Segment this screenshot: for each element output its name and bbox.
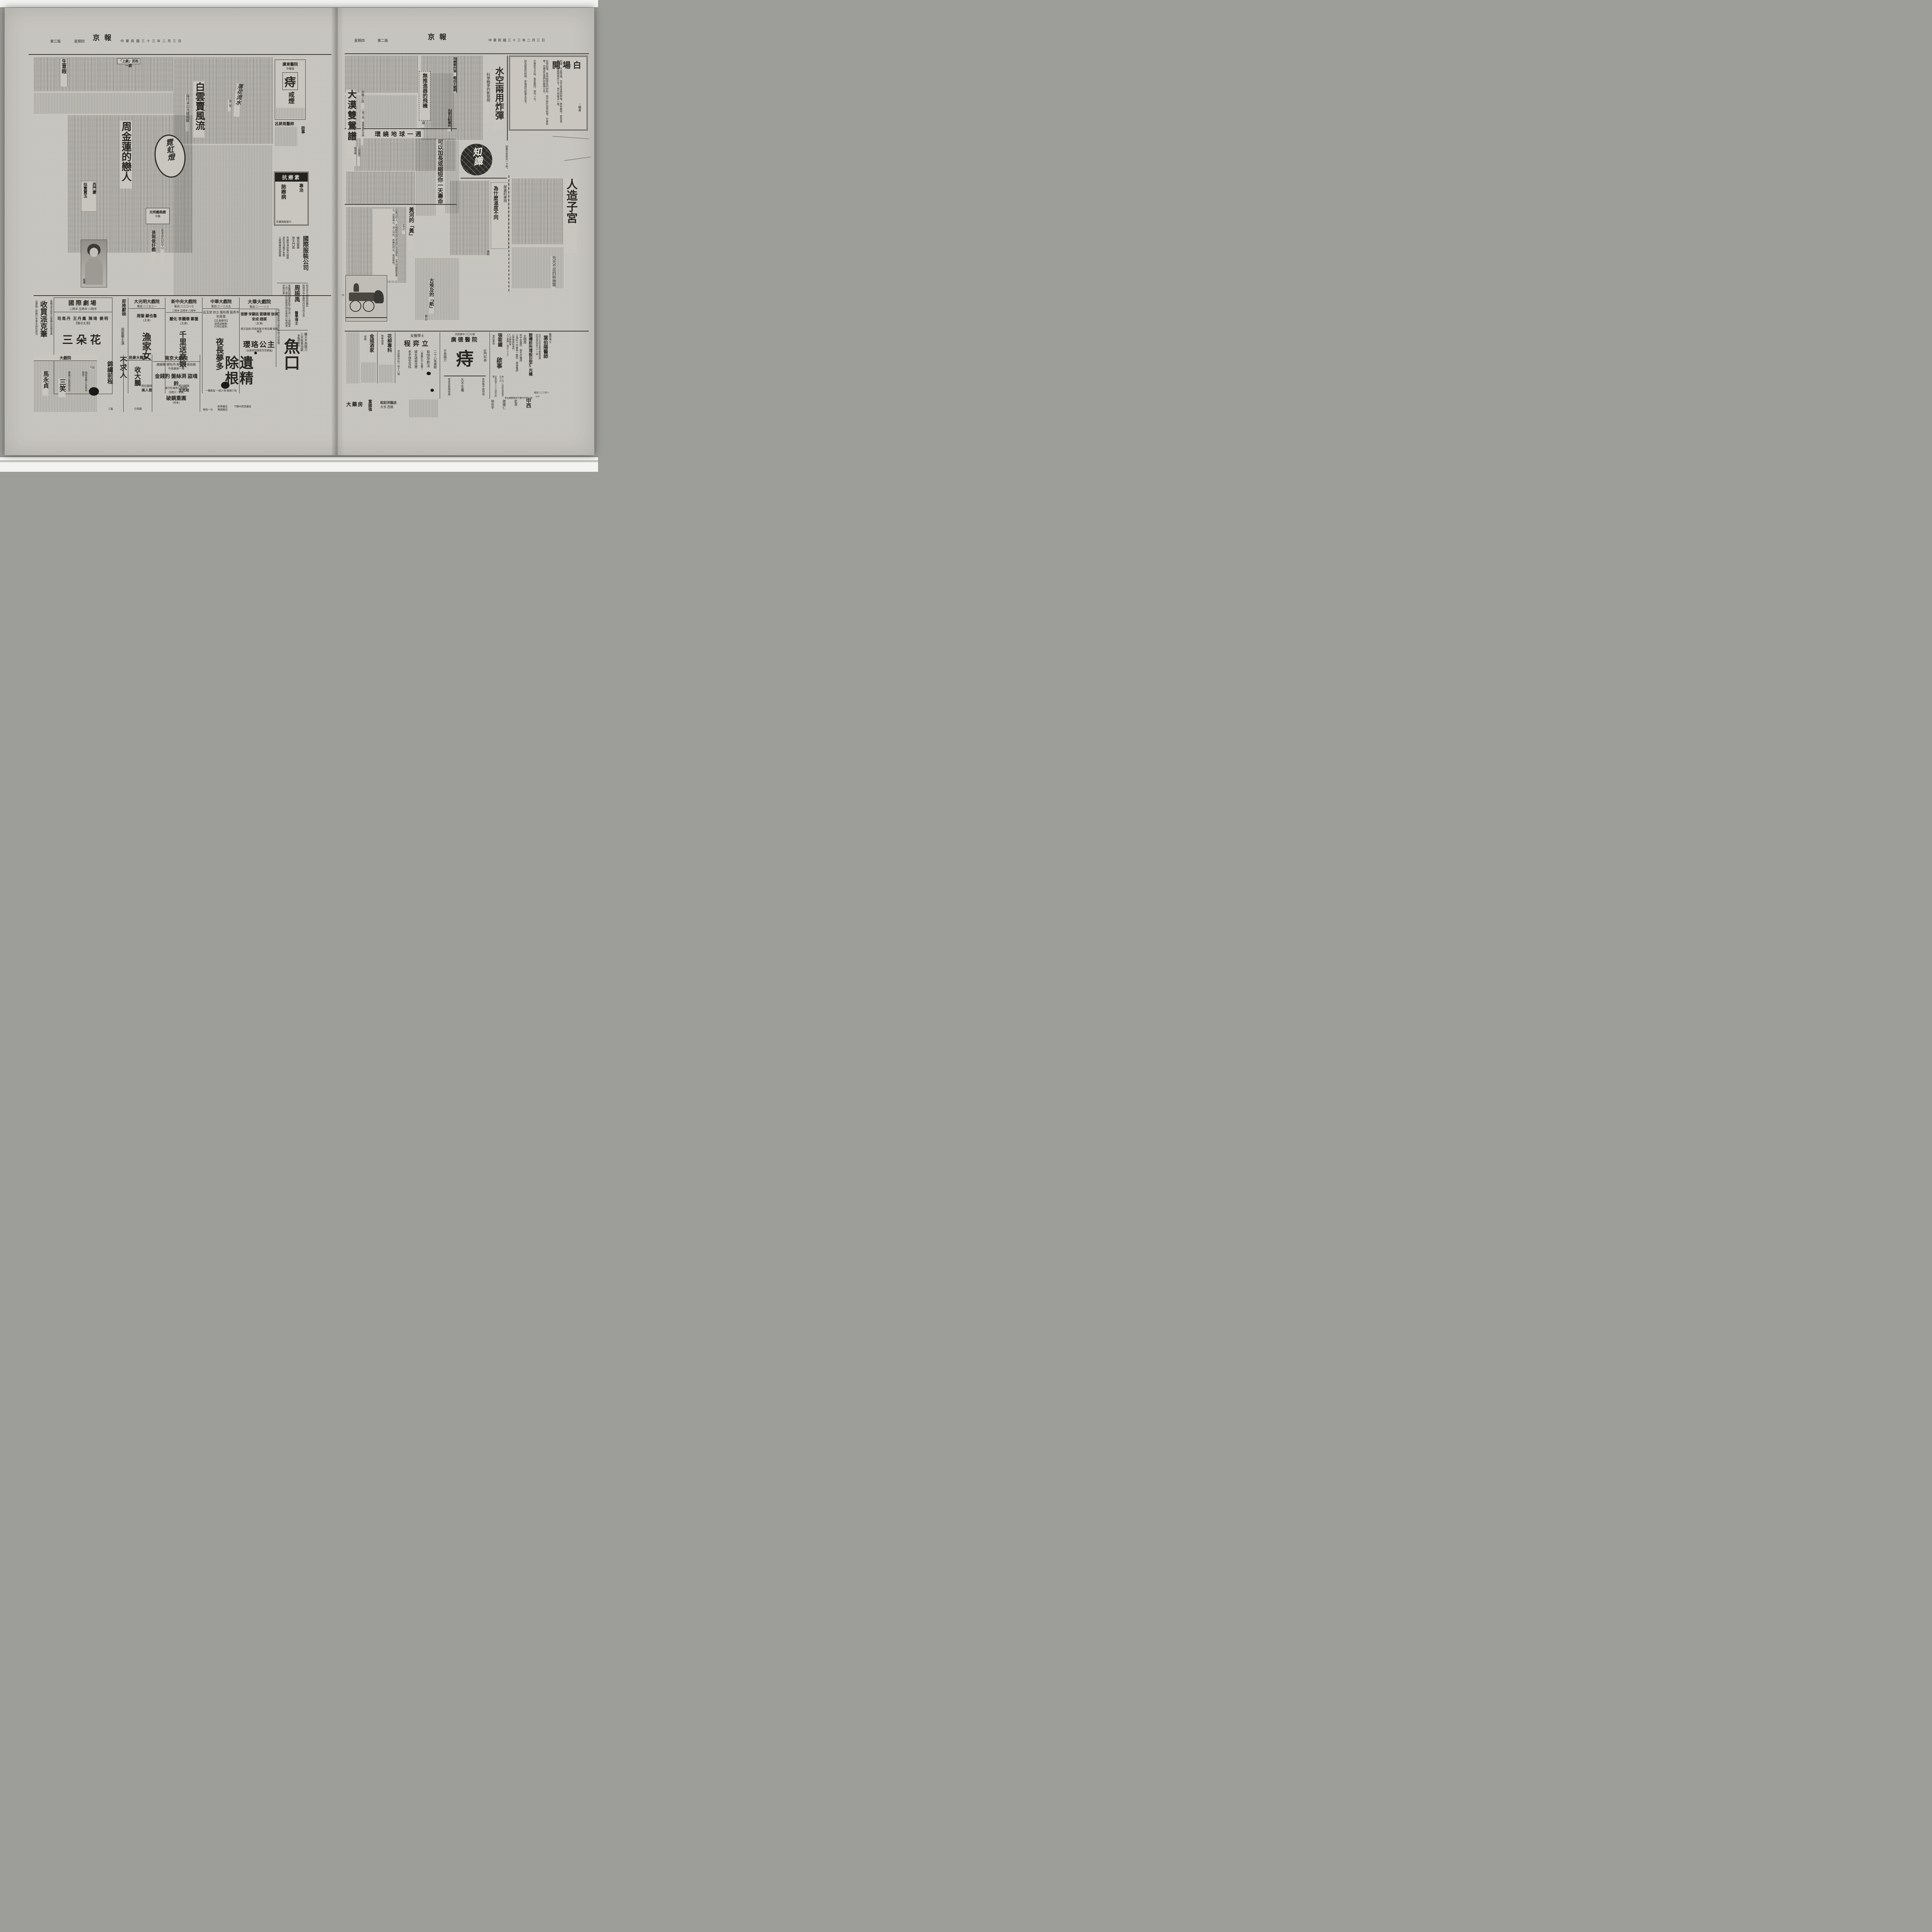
ad-divider — [444, 376, 486, 376]
ad-clothing: 國際服裝公司 擴充營業 放大門面 馬褲呢海勃龍大總匯 貨色充沛獨步金陵 工精價廉… — [277, 235, 308, 281]
theater-film: 三朵花 — [54, 332, 112, 347]
seal-text: 霓虹燈 — [164, 138, 176, 173]
date-line: 中華民國三十三年二月三日 — [488, 38, 546, 43]
article-title-jet-box: 無推進器的飛機 — [419, 71, 430, 121]
article-title-biz-eye: 生意眼 — [60, 59, 68, 87]
article-body — [345, 56, 418, 93]
ad-line1: 專治 — [298, 184, 303, 197]
shop-name: 徐志平 — [491, 400, 494, 417]
note-line1: 光明義務戲 — [146, 210, 169, 214]
theater-phone: 電話:二三〇八七 — [166, 304, 202, 308]
note-line2: 今晚 — [146, 214, 169, 218]
ad-zhangxiaotie: 張筱鐵 金石篆刻 啟事 自一月一日起石質每字五十元 牙質每字八十元四字起算 — [491, 333, 504, 399]
theater-cast: 司馬丹 王丹鳳 陳琦 姜明 — [54, 315, 112, 321]
theater-times: 二時半 五時半 八時半 — [166, 308, 202, 313]
ad-line: 體大不用開刀 — [304, 333, 307, 367]
theater-film: 三笑 — [58, 379, 65, 397]
ad-line: 下關中西堂藥房 — [234, 405, 252, 408]
ad-line: 有財無子縱何用 — [481, 378, 484, 397]
person-figure — [354, 283, 359, 292]
theater-tags: 國王誕辰 四海來朝 珍奇炫耀 窮極奢侈 — [240, 328, 279, 333]
edition-label: 第三版 — [50, 39, 61, 44]
paper-crack — [553, 136, 589, 139]
ad-line: 婦女諸病流帶 — [414, 350, 417, 393]
ad-degree: 醫學博士 — [548, 333, 551, 356]
ad-line: 有快孕新法 — [426, 350, 430, 393]
section-rule — [461, 178, 507, 179]
ad-line: 心肺肺癆科專門 — [512, 334, 514, 392]
ad-name: 葉伯陽醫師 — [543, 335, 548, 378]
ad-line: 放大門面 — [292, 236, 295, 260]
scanner-band — [0, 460, 598, 462]
ad-big-jieyan: 戒煙 — [287, 92, 294, 107]
theater-times: 二時半 五時半 八時半 — [54, 307, 112, 312]
shop-name: 謝維仁 — [502, 400, 506, 417]
illustration-cart — [345, 275, 387, 321]
article-paragraph: 打算從今天起，每星期四，發刊一次。 — [527, 60, 536, 126]
center-fold — [331, 8, 344, 455]
subhead-ximengqing: 西門慶 似賣寶玉 — [81, 181, 97, 212]
article-title-temperature-box: 屋裏的東西 為什麼溫度不同 — [491, 182, 509, 249]
ad-line: 二十八年實驗 — [434, 350, 437, 393]
feature-title: 張琬做好戲 — [151, 230, 155, 263]
shop-name: 中西 — [526, 398, 531, 417]
ad-big: 啟事 — [495, 357, 502, 374]
ad-line: 萬國藥房 — [218, 408, 228, 411]
theater-films: 金錢豹 盤絲洞 盜魂鈴 — [153, 372, 200, 387]
theater-castnote: (主演) — [166, 321, 202, 325]
photo-caption: 鳳廔 — [82, 279, 85, 286]
ad-yijing: 遺精除根 每粒一元 萬國藥房 新華藥房 下關中西堂藥房 — [201, 355, 258, 412]
theater-line: 今起 — [90, 366, 95, 369]
shop-name: 史濟 — [514, 400, 517, 417]
article-body — [512, 179, 563, 244]
ad-fineprint — [275, 127, 297, 146]
article-title-papyrus: 古埃及的「紙」 — [429, 278, 434, 314]
theater-ad-minzhong: 民衆大舞台 收大鵬 日夜戲 — [124, 355, 152, 412]
article-title-zhoujinlian: 周金蓮的戀人 — [120, 121, 132, 189]
column-rule — [507, 56, 508, 141]
novel-author: 王度廬作 — [357, 147, 360, 166]
date-line: 中華民國三十三年二月三日 — [121, 39, 183, 43]
ad-zhouzhenyu: 前北京大總統府醫官 前南京中央醫院內科兒科主任 周振禹 醫學博士 本醫師現因要事… — [277, 283, 308, 329]
article-body — [173, 145, 273, 295]
article-womb: 人造子宮 先天不足的新施策 — [509, 175, 587, 291]
article-body — [415, 258, 459, 320]
subhead-a: 西門慶 — [92, 182, 96, 209]
ad-credential: 前南京中央醫院內科兒科主任 — [302, 284, 304, 328]
ad-huali: 花柳專科 梅毒淋濁 — [378, 332, 395, 383]
novel-body — [346, 172, 415, 204]
ad-doctor-name: 呂屏周醫師 — [275, 121, 305, 126]
article-body — [431, 73, 454, 128]
subhead-b: 似賣寶玉 — [82, 182, 87, 209]
ad-line: 客飯 — [363, 335, 366, 351]
theater-note: 三集 — [98, 408, 123, 410]
shop-tailor: 松記洋服店 大衣 西裝 — [380, 400, 407, 409]
article-byline: 春谷 — [424, 315, 427, 325]
ad-yukou: 體大不用開刀 三天負責消散 李醫師專科 魚口 — [277, 330, 308, 411]
cart-wheel — [363, 300, 374, 312]
ad-dept: 肛門科病 — [483, 349, 486, 371]
ad-yeboyang: 醫學博士 葉伯陽醫師 內科小兒科花柳科兼擅戒煙 診所遊府西街六十一號 電話二二三… — [534, 333, 552, 398]
ad-line: △專醫久不生養▽ — [420, 350, 423, 393]
section-rule — [345, 204, 457, 205]
theater-phone: 電話:二一一八三 — [240, 305, 279, 309]
ad-big-yijing: 遺精除根 — [212, 355, 252, 397]
theater-name: 國際劇場 — [54, 299, 112, 307]
theater-name: 新中央大戲院 — [166, 298, 202, 304]
theater-film: 馬永貞 — [42, 371, 48, 396]
ad-clothing-name: 國際服裝公司 — [302, 236, 308, 281]
article-title-jet: 無推進器的飛機 — [422, 73, 427, 116]
ad-degree: 女醫學士 — [396, 333, 439, 338]
feature-kicker: 藝承恩仇記中心 — [161, 229, 164, 264]
shop-name: 大藥房 — [346, 400, 364, 408]
ad-fineprint — [379, 365, 393, 383]
coming-label: 即將獻映 — [121, 299, 126, 322]
theater-name: 民衆大舞台 — [124, 355, 152, 361]
ad-name: 金城酒家 — [369, 334, 374, 361]
theater-name: 大華大戲院 — [240, 298, 279, 305]
theater-foot: (古裝神話媲美月宮寶盒) — [240, 349, 279, 352]
article-body — [34, 93, 173, 114]
theater-film: 瓔珞公主 — [240, 339, 279, 349]
cart-body — [349, 293, 374, 301]
scanner-strip-top — [0, 0, 598, 7]
theater-castnote: 【主演傑作】 — [203, 319, 239, 323]
photo-actress: 鳳廔 — [81, 240, 107, 287]
ad-scope: 內科小兒科花柳科兼擅戒煙 — [538, 334, 540, 396]
article-title-globe: 環繞地球一週 — [375, 130, 423, 138]
ad-line: 三天負責消散 — [300, 333, 303, 367]
ad-line: 人工氣胸(每次三十元) — [506, 334, 508, 392]
ad-line: 每粒一元 — [203, 408, 213, 411]
ad-line: 老手接生兒科 — [408, 350, 411, 393]
ad-line: 不用開刀 — [443, 349, 446, 371]
theater-name: 中華大戲院 — [203, 298, 239, 304]
ad-line: X光肺檢查 — [509, 334, 511, 392]
article-title-river: 黃河的「黃」 — [408, 207, 413, 250]
ad-line: 工精價廉拾我莫屬 — [278, 236, 281, 275]
ad-line: 馬褲呢海勃龍大總匯 — [286, 236, 288, 275]
ad-name: 鼓樓診所增設巨型X光機 — [528, 333, 532, 391]
theater-name: 大戲院 — [34, 355, 97, 361]
novel-artist: 鏡海繪 — [353, 147, 356, 166]
ad-addr: 診所遊府西街六十一號 — [535, 334, 537, 380]
article-kicker-womb: 先天不足的新施策 — [551, 256, 555, 290]
ad-line3: 針藥兩廠發行 — [276, 219, 291, 223]
ad-fineprint — [361, 362, 376, 383]
novel-chapter: 第一章 風雲裏的兄妹 — [361, 111, 364, 145]
article-title-baiyun: 白雲賣風流 — [193, 81, 205, 138]
ink-stain — [254, 352, 257, 354]
article-byline: 博鈞 — [486, 250, 489, 260]
theater-ad-nanjing: 南京大戲院 趙韻聲 銀牡丹 粉牡丹 張如庭 今夜最後一場 金錢豹 盤絲洞 盜魂鈴… — [153, 355, 200, 412]
theater-line: 今夜最後一場 — [153, 367, 200, 371]
theater-daynote: (四本) — [153, 401, 200, 404]
article-excerpt: 近黃河的人，大概都知道它是由於含泥過多、北方到處都是黃土，這些黃土，流入河內，將… — [372, 209, 397, 281]
ad-notice-label: 啟事 — [300, 126, 304, 136]
ad-name: 廣德醫院 — [440, 336, 490, 344]
ad-line: 新華藥房 — [218, 405, 228, 408]
theater-castnote: (主演) — [129, 318, 165, 322]
theater-phone: 電話:二二五三一 — [129, 304, 165, 309]
chapter-label: 第二章 — [228, 100, 231, 111]
ground-line — [346, 317, 387, 318]
ink-stain — [427, 372, 431, 375]
ad-line2: 肺癆病 — [281, 184, 286, 203]
ad-fineprint — [409, 400, 438, 417]
ad-notice-body: 本醫師現因要事赴平由元月二十號起至二月三號止診務暫停特此奉報以免病者空勞往返 — [278, 284, 290, 328]
article-paragraph: 知識，不是常識，也不是深奧的學理，要有趣味，要有意義，在這幾個條件之下，努力培植… — [549, 60, 562, 126]
ad-price: 牙質每字八十元四字起算 — [492, 376, 496, 398]
ad-price: 自一月一日起石質每字五十元 — [498, 376, 503, 398]
ad-addr: 洪武路中二〇七號 — [440, 333, 490, 336]
section-rule — [345, 331, 589, 332]
knowledge-logo: 知識 — [461, 144, 492, 175]
ink-stain — [89, 387, 99, 396]
horse-figure — [374, 290, 384, 303]
ad-name: 花柳專科 — [387, 334, 392, 361]
shop-name: 松記洋服店 — [380, 400, 407, 405]
coming-star: 周曼華主演 — [121, 328, 124, 353]
theater-castnote: 【聯合主演】 — [54, 321, 112, 325]
article-title-womb: 人造子宮 — [565, 179, 577, 253]
masthead-rule — [29, 54, 332, 55]
theater-film: 錦繡前程 — [106, 361, 112, 401]
ad-big-zhi: 痔 — [282, 72, 298, 90]
cart-wheel — [350, 300, 361, 312]
theater-note: 連日狂滿請火速定座 — [153, 387, 200, 389]
photo-face — [90, 248, 98, 257]
ad-jincheng: 金城酒家 客飯 — [360, 332, 378, 383]
newspaper-sheet: 第三版 星期四 京報 中華民國三十三年二月三日 生意眼 「上劇」武松一劇 白雲賣… — [5, 8, 594, 455]
ad-guangde: 洪武路中二〇七號 廣德醫院 痔 肛門科病 不用開刀 有財無子縱何用 久不生養 老… — [440, 332, 490, 399]
ad-hospital-addr: 中華路 — [275, 67, 305, 71]
theater-ad-jinxiu: 錦繡前程 三集 — [98, 355, 124, 412]
theater-dayfilm: 破鏡重圓 — [153, 394, 200, 401]
photo-dress — [85, 258, 103, 285]
theater-tagline: 打得比還苦! — [203, 325, 239, 328]
ink-stain — [430, 389, 434, 392]
ink-stain — [221, 382, 230, 389]
weekday-label: 星期四 — [354, 38, 365, 43]
ad-fineprint — [276, 108, 304, 119]
article-paragraph: 科學知識，是本版特有的材料，但不限於自然科學，社會科學，也應該在我們的範圍以內。 — [536, 60, 548, 126]
article-byline: ・編者 — [578, 102, 581, 122]
article-byline: 遲 — [422, 121, 425, 128]
shop-name: 富國強 — [367, 400, 371, 417]
ad-big-zhi: 痔 — [440, 345, 490, 371]
theater-cast: 呂玉堃 徐立 龔秋霞 殷秀岑 利青雲 — [203, 310, 239, 319]
theater-name: 南京大戲院 — [153, 355, 200, 362]
novel-genre: 俠情小說 — [361, 90, 364, 109]
article-title-lifespan: 可以加長或縮短你一天壽命 — [437, 139, 442, 215]
theater-cast: 張靜 李顯廷 劉聰潮 徐琪 安成 趙撰 — [240, 311, 279, 321]
ad-brand: 抗癆素 — [275, 173, 308, 182]
article-paragraph: 因為版面的限制，來稿請勿超過五百字。 — [515, 60, 526, 126]
ad-line: 擴充營業 — [296, 236, 299, 260]
ad-line: 久不生養 — [460, 378, 464, 397]
ad-name: 程弈立 — [396, 338, 439, 348]
theater-line: 日夜戲 — [124, 408, 152, 410]
article-title-wusong: 「上劇」武松一劇 — [117, 58, 140, 64]
theater-day: 日戲又一鉅劇 — [153, 391, 200, 394]
ad-phone: 電話二二三四八 — [534, 391, 549, 394]
ad-line: 老來受欺悔恨遲 — [447, 378, 450, 397]
scanner-strip-bottom — [0, 457, 598, 472]
ad-doctor-name: 周振禹 — [293, 285, 299, 310]
paper-title: 京報 — [428, 32, 451, 42]
ad-line: 貨色充沛獨步金陵 — [282, 236, 284, 275]
theater-cast: 趙韻聲 銀牡丹 粉牡丹 張如庭 — [153, 362, 200, 367]
article-byline: 玄之 — [402, 224, 405, 234]
illustration-mark: 16 — [342, 294, 344, 297]
ad-credential: 前北京大總統府醫官 — [305, 284, 308, 328]
note-box-guangming: 光明義務戲 今晚 — [146, 208, 170, 224]
ad-hospital-name: 廣東醫院 — [275, 61, 305, 67]
ad-line: 太陽燈 — [523, 335, 526, 350]
ad-xray: 鼓樓診所增設巨型X光機 太陽燈 前中央醫院 楊光杰醫師 上海紅十字會第一醫院 陳… — [505, 333, 532, 395]
masthead-rule — [345, 53, 589, 54]
ad-doctor: 上海紅十字會第一醫院 陳偉醫師 — [515, 334, 518, 392]
paper-title: 京報 — [93, 32, 116, 43]
ad-code: A30 — [536, 396, 539, 398]
ad-big-yukou: 魚口 — [282, 338, 299, 404]
ad-line: 金石篆刻 — [492, 335, 494, 354]
article-kicker: 屋裏的東西 — [503, 185, 507, 231]
ad-guangdong-hospital: 廣東醫院 中華路 痔 戒煙 — [275, 60, 306, 120]
theater-name: 大光明大戲院 — [129, 298, 165, 304]
article-title-bomb: 水空兩用炸彈 — [493, 66, 504, 130]
article-body — [34, 57, 173, 91]
theater-cast: 周璇 顧也魯 — [129, 313, 165, 318]
theater-ad-west: 大戲院 馬永貞 三笑 今起 — [34, 355, 97, 412]
article-body — [450, 181, 489, 255]
shop-line: 大衣 西裝 — [380, 405, 407, 409]
theater-phone: 電話:三一二九五 — [203, 304, 239, 309]
ad-lvpingzhou: 呂屏周醫師 啟事 — [275, 121, 305, 148]
ad-doctor: 前中央醫院 楊光杰醫師 — [519, 334, 522, 392]
article-opening: 開場白 ・編者 知識，不是常識，也不是深奧的學理，要有趣味，要有意義，在這幾個條… — [509, 56, 588, 131]
theater-cast: 嚴化 李麗華 鄭重 — [166, 316, 202, 321]
ad-doctor-degree: 醫學博士 — [294, 311, 298, 328]
margin-note: 頭腦也來研究一下吧。 — [505, 145, 507, 178]
theater-castnote: (主演) — [240, 321, 279, 325]
article-kicker-bomb: 科學戰爭的新發明 — [485, 73, 489, 122]
weekday-label: 星期四 — [74, 39, 85, 44]
paper-crack — [564, 156, 591, 161]
ad-fineprint — [346, 332, 359, 383]
ad-line: 梅毒淋濁 — [380, 335, 383, 362]
article-title-temperature: 為什麼溫度不同 — [493, 186, 498, 245]
theater-film: 收大鵬 — [133, 366, 140, 395]
knowledge-logo-text: 知識 — [470, 147, 483, 172]
ad-addr: 洪武路中段一百十八號 — [396, 350, 399, 393]
edition-label: 第二版 — [378, 38, 388, 43]
ad-name: 張筱鐵 — [497, 333, 502, 355]
ad-kanglaosu: 抗癆素 專治 肺癆病 針藥兩廠發行 — [274, 172, 309, 226]
